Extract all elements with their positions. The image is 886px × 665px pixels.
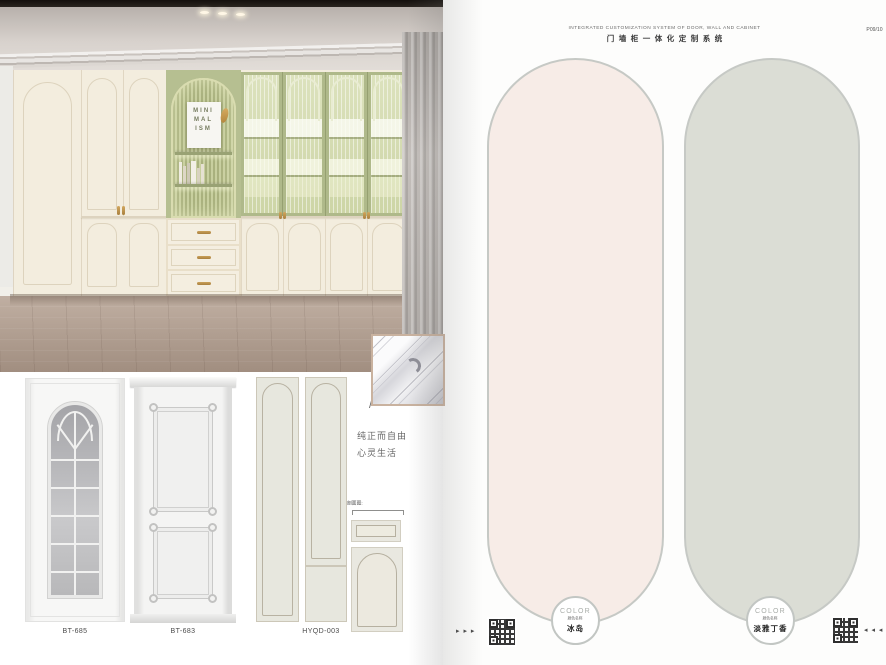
color-swatch-capsule	[487, 58, 664, 625]
panel-sample-arch	[351, 547, 403, 632]
gold-handle	[197, 282, 211, 285]
glass-cabinet-door	[241, 72, 283, 216]
drawer	[168, 271, 239, 295]
glass-cabinet-door	[326, 72, 368, 216]
panel-sample-hyqd003	[256, 377, 299, 622]
minimalism-poster: MINI MAL ISM	[187, 102, 221, 148]
corner-ornament-icon	[208, 507, 217, 516]
door-sample-bt683	[130, 377, 236, 623]
molding-detail-photo	[371, 334, 445, 406]
door-label: BT-685	[25, 628, 125, 635]
color-badge-label: COLOR	[560, 608, 591, 615]
wardrobe-door	[23, 82, 72, 285]
color-name-label: 颜色名称	[763, 617, 778, 621]
triple-arrow-left-icon: ◂ ◂ ◂	[864, 626, 883, 634]
gold-handle	[279, 212, 282, 219]
page-header-cn: 门墙柜一体化定制系统	[443, 33, 886, 44]
curtain	[402, 32, 443, 338]
corner-ornament-icon	[208, 403, 217, 412]
corner-ornament-icon	[149, 507, 158, 516]
raised-panel	[153, 407, 213, 512]
color-name: 冰岛	[567, 623, 584, 634]
gold-handle	[122, 206, 125, 215]
shelf	[175, 184, 232, 187]
muntin	[51, 515, 99, 517]
corner-ornament-icon	[208, 523, 217, 532]
corner-ornament-icon	[149, 594, 158, 603]
muntin	[51, 487, 99, 489]
tagline: 纯正而自由 心灵生活	[357, 428, 407, 462]
ceiling-light-icon	[236, 13, 245, 16]
arch-molding	[262, 383, 293, 616]
panel-divider	[306, 565, 346, 567]
door-label: BT-683	[130, 628, 236, 635]
section-label: 剖面图:	[347, 499, 363, 506]
ceiling-light-icon	[218, 12, 227, 15]
color-swatch-capsule	[684, 58, 860, 625]
raised-panel	[153, 527, 213, 599]
molding-profile-drawing	[352, 510, 404, 515]
gold-handle	[363, 212, 366, 219]
gold-handle	[197, 256, 211, 259]
qr-code	[831, 616, 860, 645]
poster-line: ISM	[187, 125, 221, 134]
left-wall	[0, 66, 13, 296]
wardrobe-door	[129, 78, 159, 210]
shelf	[175, 152, 232, 155]
gold-leaf-icon	[219, 107, 229, 123]
door-plinth	[130, 614, 236, 623]
color-badge-circle: COLOR 颜色名称 淡雅丁香	[746, 596, 795, 645]
fluted-arch: MINI MAL ISM	[171, 78, 236, 218]
wardrobe-door	[87, 223, 117, 287]
ceiling-edge	[0, 0, 443, 7]
corner-ornament-icon	[149, 523, 158, 532]
muntin	[51, 459, 99, 461]
tagline-line: 纯正而自由	[357, 428, 407, 445]
glass-cabinet-door	[283, 72, 325, 216]
door-crown	[130, 377, 236, 387]
gold-handle	[197, 231, 211, 234]
color-badge-label: COLOR	[755, 608, 786, 615]
gold-handle	[283, 212, 286, 219]
floor-shadow	[10, 294, 410, 306]
gold-handle	[117, 206, 120, 215]
arch-molding	[311, 383, 341, 559]
wardrobe-cabinet: MINI MAL ISM	[13, 70, 409, 297]
gold-handle	[367, 212, 370, 219]
drawer-stack	[166, 218, 241, 297]
page-header-en: INTEGRATED CUSTOMIZATION SYSTEM OF DOOR,…	[487, 26, 841, 31]
divider	[123, 70, 124, 216]
muntin	[51, 571, 99, 573]
poster-line: MINI	[187, 107, 221, 116]
page-number: P09/10	[866, 27, 882, 32]
cabinet-door	[283, 218, 325, 297]
divider	[81, 70, 82, 297]
triple-arrow-right-icon: ▸ ▸ ▸	[456, 627, 475, 635]
door-sample-bt685	[25, 378, 125, 622]
corner-ornament-icon	[149, 403, 158, 412]
glass-bookcase	[241, 72, 409, 216]
color-name: 淡雅丁香	[754, 623, 788, 634]
room-photo: MINI MAL ISM	[0, 0, 443, 372]
poster-line: MAL	[187, 116, 221, 125]
drawer	[168, 220, 239, 244]
lower-cabinet-doors	[241, 218, 409, 297]
wardrobe-door	[87, 78, 117, 210]
panel-sample-rect	[351, 520, 401, 542]
arched-glass-insert	[48, 402, 102, 598]
color-swatch-page: INTEGRATED CUSTOMIZATION SYSTEM OF DOOR,…	[443, 0, 886, 665]
qr-code	[487, 617, 517, 647]
tagline-line: 心灵生活	[357, 445, 407, 462]
catalog-spread: MINI MAL ISM	[0, 0, 886, 665]
cabinet-door	[325, 218, 367, 297]
muntin	[51, 543, 99, 545]
color-badge-circle: COLOR 颜色名称 冰岛	[551, 596, 600, 645]
book-spines	[179, 161, 204, 184]
muntin	[74, 413, 76, 595]
cabinet-door	[241, 218, 283, 297]
corner-ornament-icon	[208, 594, 217, 603]
door-body	[134, 387, 232, 614]
color-name-label: 颜色名称	[568, 617, 583, 621]
display-niche: MINI MAL ISM	[166, 70, 241, 218]
panel-sample-hyqd003	[305, 377, 347, 622]
ceiling-light-icon	[200, 11, 209, 14]
wardrobe-door	[129, 223, 159, 287]
drawer	[168, 246, 239, 270]
